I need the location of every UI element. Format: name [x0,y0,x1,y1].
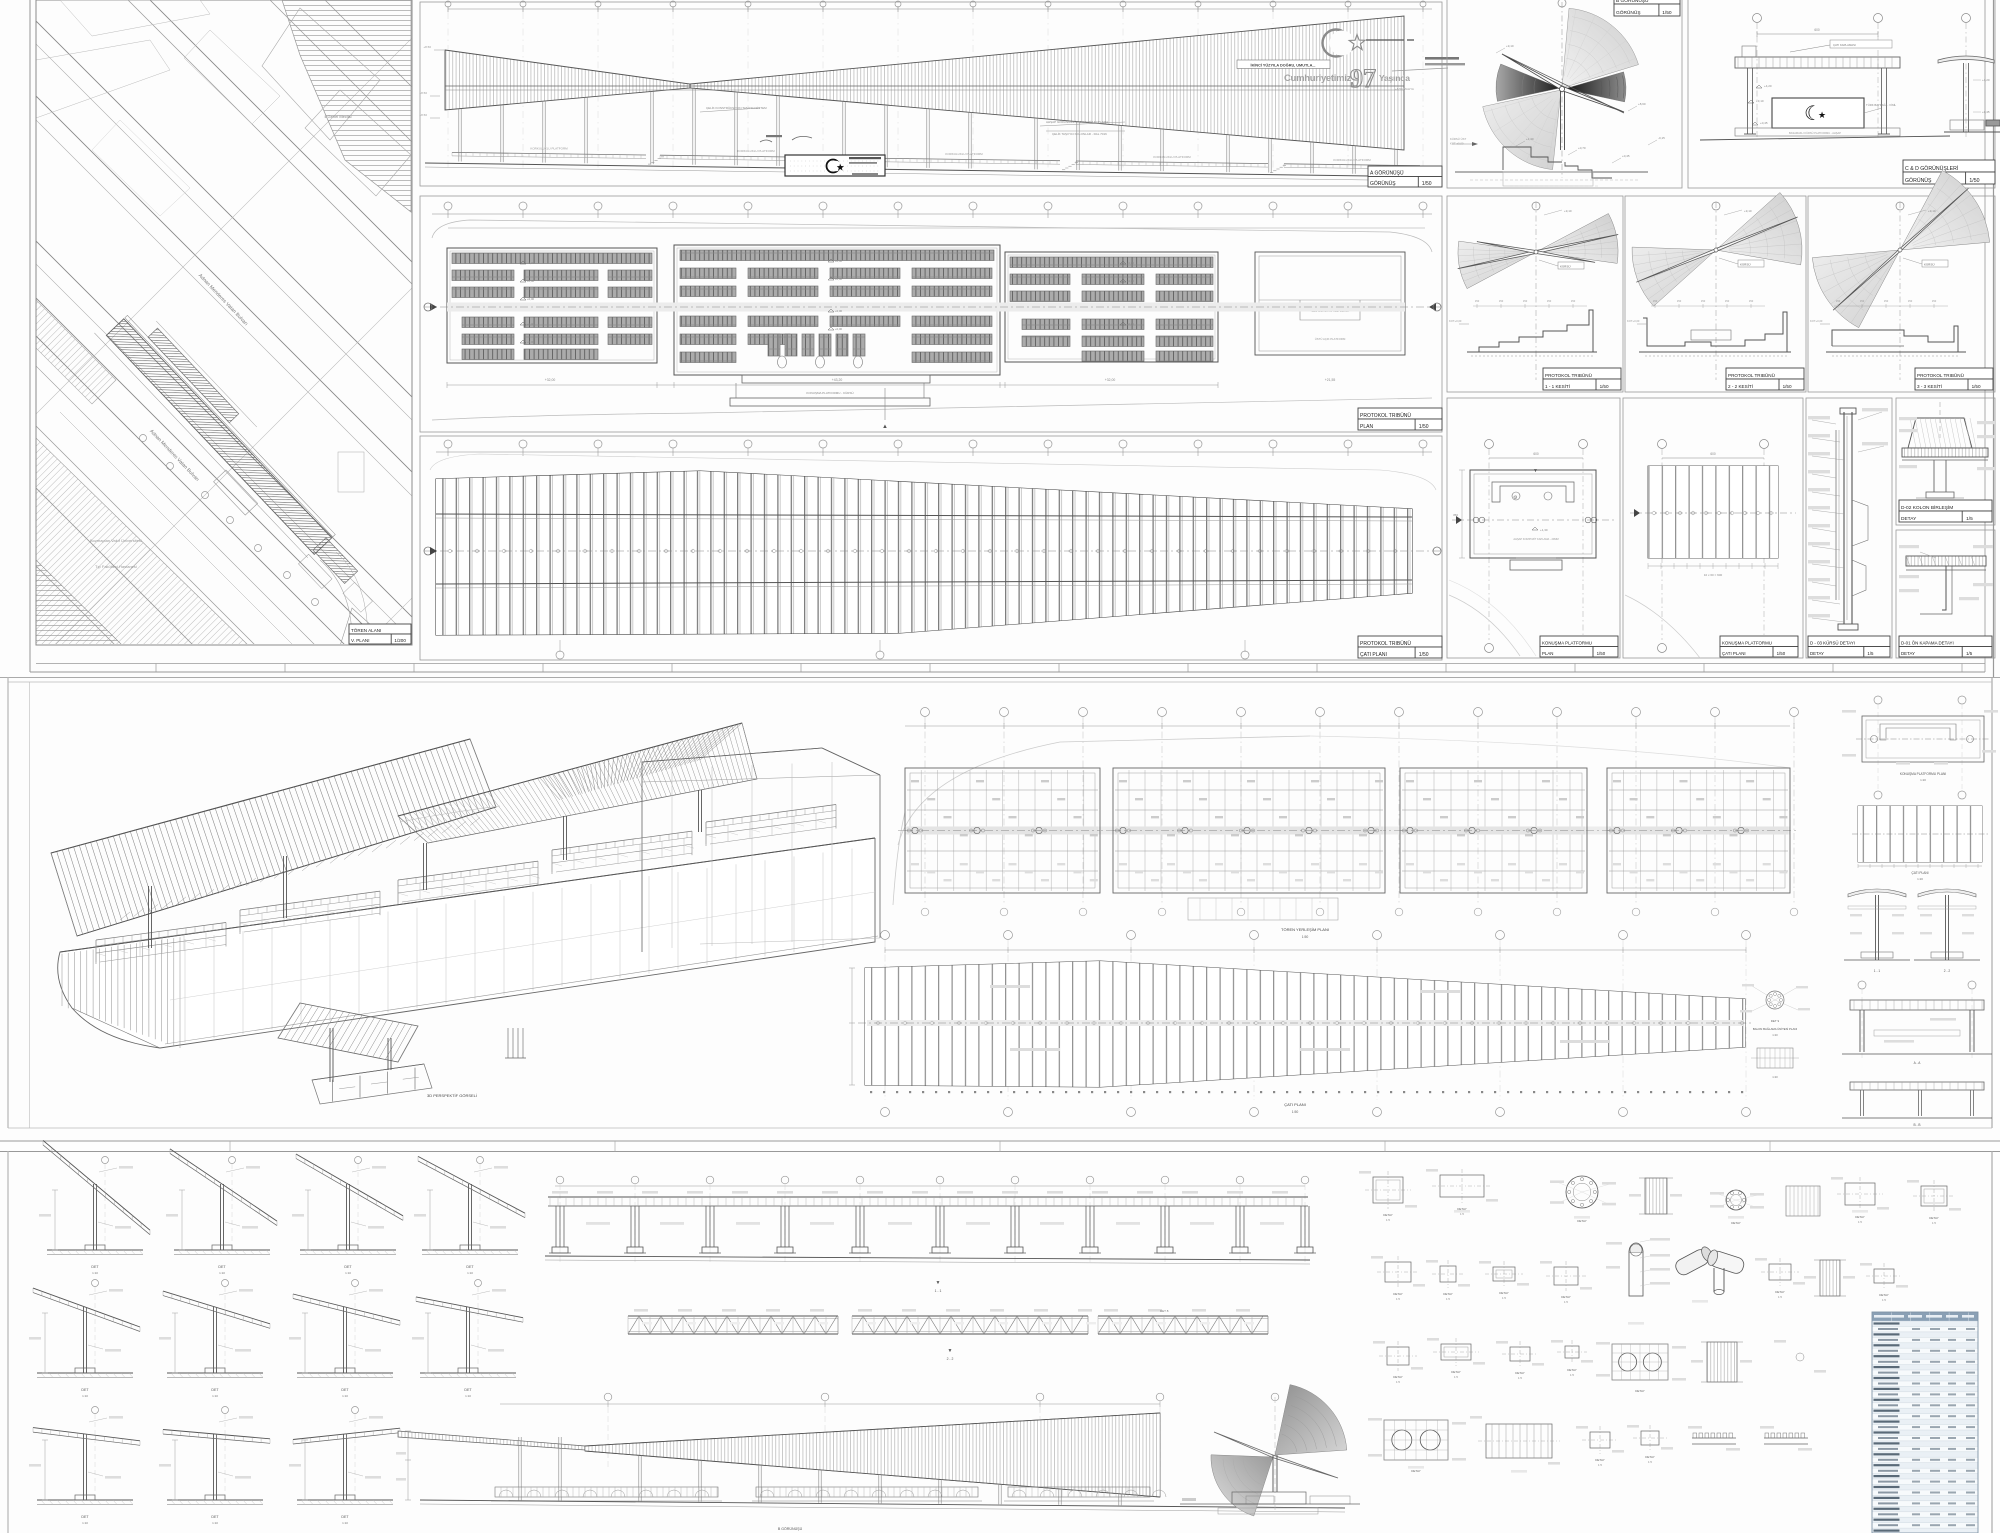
svg-text:150: 150 [1932,299,1937,303]
svg-text:PROTOKOL TRIBÜNÜ: PROTOKOL TRIBÜNÜ [1917,372,1964,378]
svg-text:+1,30: +1,30 [1526,137,1534,141]
svg-text:1:5: 1:5 [1778,1295,1782,1299]
svg-text:ÇATI PLANI: ÇATI PLANI [1722,651,1746,656]
svg-text:1/50: 1/50 [1783,384,1792,389]
svg-text:1:10: 1:10 [345,1271,351,1275]
svg-text:1:50: 1:50 [1292,1110,1299,1114]
svg-text:150: 150 [1523,299,1528,303]
svg-text:KOT:+0,00: KOT:+0,00 [1627,319,1640,323]
svg-text:1:5: 1:5 [1446,1297,1450,1301]
svg-text:1/5: 1/5 [1867,651,1874,656]
svg-text:DETAY: DETAY [1393,1375,1403,1379]
svg-text:TÖREN ALANI: TÖREN ALANI [351,627,381,633]
svg-text:150: 150 [1547,299,1552,303]
svg-text:1:10: 1:10 [212,1394,218,1398]
svg-text:DETAY: DETAY [1515,1371,1525,1375]
svg-text:1/50: 1/50 [1972,384,1981,389]
svg-text:600: 600 [1533,452,1539,456]
svg-text:+9,10: +9,10 [1506,44,1514,48]
svg-text:1/200: 1/200 [394,638,406,643]
svg-text:DETAY: DETAY [1635,1389,1645,1393]
svg-text:1/50: 1/50 [1422,181,1432,187]
svg-text:DETAY: DETAY [1879,1293,1889,1297]
svg-text:DET: DET [91,1265,99,1269]
svg-text:DETAY: DETAY [1775,1290,1785,1294]
svg-text:B GÖRÜNÜŞÜ: B GÖRÜNÜŞÜ [778,1527,803,1531]
svg-text:150: 150 [1677,299,1682,303]
svg-text:1:10: 1:10 [212,1521,218,1525]
svg-text:KONUŞMA PLATFORMU PLANI: KONUŞMA PLATFORMU PLANI [1900,772,1946,776]
svg-text:DET: DET [81,1515,89,1519]
svg-text:DETAY: DETAY [1929,1216,1939,1220]
svg-text:+8,60: +8,60 [1638,102,1646,106]
svg-text:⚙: ⚙ [1513,495,1518,501]
svg-text:PROTOKOL TRIBÜNÜ: PROTOKOL TRIBÜNÜ [1545,372,1592,378]
svg-text:+8.50: +8.50 [423,45,431,49]
svg-text:150: 150 [1475,299,1480,303]
svg-text:KORKULUKLU PLATFORM: KORKULUKLU PLATFORM [1153,155,1191,159]
svg-text:DETAY: DETAY [1393,1292,1403,1296]
svg-text:600: 600 [1814,28,1820,32]
svg-text:DETAY: DETAY [1901,516,1917,522]
svg-text:KÜRSÜ: KÜRSÜ [1740,263,1751,267]
svg-text:KORKULUKLU PLATFORM: KORKULUKLU PLATFORM [945,152,983,156]
svg-text:+32,00: +32,00 [1105,378,1116,382]
svg-text:DETAY: DETAY [1810,651,1824,656]
svg-text:1:20: 1:20 [1917,877,1923,881]
svg-text:DETAY: DETAY [1595,1458,1605,1462]
svg-text:3D PERSPEKTİF GÖRSELİ: 3D PERSPEKTİF GÖRSELİ [427,1093,477,1098]
svg-text:+0,00: +0,00 [1127,261,1135,265]
svg-text:DETAY: DETAY [1731,1221,1741,1225]
svg-text:BALON BAĞLAMA ÜNİTESİ PLANI: BALON BAĞLAMA ÜNİTESİ PLANI [1753,1026,1798,1031]
svg-text:ÜSTÜ AÇIK PLATFORM: ÜSTÜ AÇIK PLATFORM [1315,337,1346,341]
svg-text:1:5: 1:5 [1454,1375,1458,1379]
svg-text:1:5: 1:5 [1598,1463,1602,1467]
svg-text:1:10: 1:10 [82,1394,88,1398]
svg-text:DET: DET [341,1515,349,1519]
svg-text:DETAY: DETAY [1499,1291,1509,1295]
svg-text:1:5: 1:5 [1396,1297,1400,1301]
svg-text:+0,00: +0,00 [835,309,843,313]
svg-text:1 - 1: 1 - 1 [935,1289,942,1293]
svg-text:GÖRÜNÜŞ: GÖRÜNÜŞ [1616,9,1641,16]
svg-text:97: 97 [1350,64,1376,93]
svg-text:1/50: 1/50 [1662,10,1672,16]
svg-text:150: 150 [1653,299,1658,303]
svg-text:1:20: 1:20 [1920,778,1926,782]
svg-text:B GÖRÜNÜŞÜ: B GÖRÜNÜŞÜ [1616,0,1649,4]
svg-text:2 - 2: 2 - 2 [1944,969,1951,973]
svg-text:+0,00: +0,00 [835,327,843,331]
svg-text:+1,30: +1,30 [1540,528,1548,532]
svg-text:1:10: 1:10 [82,1521,88,1525]
svg-text:▼: ▼ [1533,468,1538,474]
svg-text:+0,45: +0,45 [1760,121,1768,125]
svg-text:KORKULUKLU PLATFORM: KORKULUKLU PLATFORM [737,149,775,153]
svg-text:+4,20: +4,20 [1982,78,1990,82]
svg-text:KOT:+0,00: KOT:+0,00 [1810,319,1823,323]
svg-text:150: 150 [1836,299,1841,303]
svg-text:1/5: 1/5 [1966,516,1973,522]
svg-text:+0,00: +0,00 [527,279,535,283]
svg-text:A GÖRÜNÜŞÜ: A GÖRÜNÜŞÜ [1370,170,1404,177]
svg-text:150: 150 [1725,299,1730,303]
svg-text:1/50: 1/50 [1777,651,1786,656]
svg-text:Bozmaplan Vakıf Üniversitesi: Bozmaplan Vakıf Üniversitesi [90,538,142,543]
svg-text:+0,00: +0,00 [1127,279,1135,283]
svg-text:DETAY: DETAY [1561,1295,1571,1299]
svg-text:DETAY: DETAY [1901,651,1915,656]
svg-text:KÜRSÜ ÜST: KÜRSÜ ÜST [1450,137,1466,141]
svg-text:2 - 2: 2 - 2 [947,1357,954,1361]
svg-text:KONUŞMA PLATFORMU: KONUŞMA PLATFORMU [1542,641,1592,646]
svg-text:DET: DET [81,1388,89,1392]
svg-text:PLAN: PLAN [1542,651,1553,656]
svg-text:GÖRÜNÜŞ: GÖRÜNÜŞ [1905,177,1932,184]
svg-text:▲: ▲ [882,424,888,430]
svg-text:DET: DET [466,1265,474,1269]
svg-text:1:5: 1:5 [1570,1373,1574,1377]
svg-text:+43,20: +43,20 [832,378,843,382]
svg-text:+9,10: +9,10 [1744,209,1752,213]
svg-text:1:5: 1:5 [1502,1296,1506,1300]
svg-text:+8.50: +8.50 [419,113,427,117]
svg-text:1:10: 1:10 [342,1394,348,1398]
svg-text:+0,00: +0,00 [835,277,843,281]
svg-text:2 - 2 KESİTİ: 2 - 2 KESİTİ [1728,383,1753,389]
svg-text:150: 150 [1884,299,1889,303]
svg-text:KOT ±0,00: KOT ±0,00 [1450,142,1464,146]
svg-text:BASAMAKLI KÜRSÜ PLATFORMU - AH: BASAMAKLI KÜRSÜ PLATFORMU - AHŞAP [1789,131,1841,135]
svg-text:+0,00: +0,00 [527,340,535,344]
svg-text:1/50: 1/50 [1419,424,1429,430]
svg-text:KONUŞMA PLATFORMU - KÜRSÜ: KONUŞMA PLATFORMU - KÜRSÜ [806,391,853,395]
svg-text:ÇATI PLANI: ÇATI PLANI [1360,652,1387,658]
svg-text:+0,00: +0,00 [527,261,535,265]
svg-text:1:5: 1:5 [1396,1380,1400,1384]
svg-text:1/5: 1/5 [1966,651,1973,656]
svg-text:Cumhuriyetimiz: Cumhuriyetimiz [1284,73,1352,84]
svg-text:1:5: 1:5 [1518,1376,1522,1380]
svg-text:DET: DET [464,1388,472,1392]
svg-text:+9,10: +9,10 [1564,209,1572,213]
svg-text:PROTOKOL TRIBÜNÜ: PROTOKOL TRIBÜNÜ [1728,372,1775,378]
svg-text:350: 350 [1453,513,1458,517]
svg-text:DET: DET [218,1265,226,1269]
svg-text:150: 150 [1701,299,1706,303]
svg-text:KORKULUKLU PLATFORM: KORKULUKLU PLATFORM [1333,158,1371,162]
svg-text:ÇELİK KONSTRÜKSİYON TAŞIYICI S: ÇELİK KONSTRÜKSİYON TAŞIYICI SİSTEM [706,105,767,110]
svg-text:1:10: 1:10 [465,1394,471,1398]
svg-text:D - 03 KÜRSÜ DETAYI: D - 03 KÜRSÜ DETAYI [1810,641,1855,646]
svg-text:+0,70: +0,70 [1578,146,1586,150]
svg-text:DETAY: DETAY [1411,1469,1421,1473]
svg-text:1:10: 1:10 [467,1271,473,1275]
svg-text:+0,00: +0,00 [1127,322,1135,326]
svg-text:150: 150 [1749,299,1754,303]
svg-text:ÇELİK TAŞIYICI KOLONLAR - RAL: ÇELİK TAŞIYICI KOLONLAR - RAL 7016 [1052,131,1107,136]
svg-text:150: 150 [1571,299,1576,303]
svg-text:DETAY: DETAY [1567,1368,1577,1372]
svg-text:★: ★ [1818,110,1826,120]
svg-text:DETAY: DETAY [1443,1292,1453,1296]
svg-text:+8.50: +8.50 [419,91,427,95]
svg-text:İKİNCİ YÜZYILA DOĞRU, UMUTLA..: İKİNCİ YÜZYILA DOĞRU, UMUTLA... [1251,62,1316,67]
svg-text:+0,00: +0,00 [835,259,843,263]
svg-text:150: 150 [1860,299,1865,303]
svg-text:B - B: B - B [1913,1123,1920,1127]
svg-text:+0,00: +0,00 [527,322,535,326]
svg-text:KORKULUKLU PLATFORM: KORKULUKLU PLATFORM [530,146,568,150]
svg-text:DETAY: DETAY [1577,1219,1587,1223]
svg-text:-0,15: -0,15 [1658,136,1665,140]
svg-text:TÖREN YERLEŞİM PLANI: TÖREN YERLEŞİM PLANI [1281,927,1329,932]
svg-text:1:5: 1:5 [1858,1220,1862,1224]
svg-text:KONUŞMA PLATFORMU: KONUŞMA PLATFORMU [1722,641,1772,646]
svg-text:1/50: 1/50 [1419,652,1429,658]
svg-text:DET 9: DET 9 [1771,1019,1780,1023]
svg-text:1:10: 1:10 [342,1521,348,1525]
svg-text:1:50: 1:50 [1302,935,1309,939]
svg-text:DETAY: DETAY [1383,1213,1393,1217]
svg-text:A - A: A - A [1914,1061,1922,1065]
svg-text:KÜRSÜ: KÜRSÜ [1924,263,1935,267]
svg-text:ÇATI PLANI: ÇATI PLANI [1284,1102,1306,1107]
svg-text:DETAY: DETAY [1451,1370,1461,1374]
svg-text:KOT:+0,00: KOT:+0,00 [1449,319,1462,323]
svg-text:DET: DET [344,1265,352,1269]
svg-text:10 x 60 = 600: 10 x 60 = 600 [1704,573,1723,577]
svg-text:1:5: 1:5 [1882,1298,1886,1302]
svg-text:Yaşında: Yaşında [1379,73,1410,83]
svg-text:+9,10: +9,10 [1928,209,1936,213]
svg-text:1:10: 1:10 [219,1271,225,1275]
svg-text:DETAY: DETAY [1855,1215,1865,1219]
svg-text:C & D GÖRÜNÜŞLERİ: C & D GÖRÜNÜŞLERİ [1905,165,1958,172]
svg-text:150: 150 [1499,299,1504,303]
svg-text:+3,10: +3,10 [1756,99,1764,103]
svg-text:GÖRÜNÜŞ: GÖRÜNÜŞ [1370,180,1396,187]
svg-text:+0,00: +0,00 [527,297,535,301]
svg-text:PROTOKOL TRIBÜNÜ: PROTOKOL TRIBÜNÜ [1360,640,1411,647]
svg-text:1:20: 1:20 [1772,1033,1778,1037]
svg-text:1:10: 1:10 [92,1271,98,1275]
svg-text:D-01 ÖN KAPAMA DETAYI: D-01 ÖN KAPAMA DETAYI [1901,641,1954,646]
svg-text:3 - 3 KESİTİ: 3 - 3 KESİTİ [1917,383,1942,389]
svg-text:▼: ▼ [936,1280,941,1286]
svg-text:150: 150 [1908,299,1913,303]
svg-text:AHŞAP GÖRÜNÜMLÜ KOMPOZİT KAPLA: AHŞAP GÖRÜNÜMLÜ KOMPOZİT KAPLAMA [1046,119,1108,124]
svg-text:ÇATI KAPLAMASI: ÇATI KAPLAMASI [1833,43,1856,47]
svg-text:1 - 1 KESİTİ: 1 - 1 KESİTİ [1545,383,1570,389]
svg-text:1 - 1: 1 - 1 [1874,969,1881,973]
svg-text:ÇATI PLANI: ÇATI PLANI [1911,871,1928,875]
svg-text:DET: DET [211,1515,219,1519]
svg-text:1/50: 1/50 [1969,178,1979,184]
svg-text:PLAN: PLAN [1360,424,1373,430]
svg-text:+0,45: +0,45 [1622,154,1630,158]
svg-text:1:5: 1:5 [1564,1300,1568,1304]
svg-text:DETAY: DETAY [1645,1455,1655,1459]
svg-text:TÜRK BAYRAĞI - VİNİL: TÜRK BAYRAĞI - VİNİL [1866,102,1897,107]
svg-text:600: 600 [1710,452,1716,456]
svg-text:DET: DET [341,1388,349,1392]
svg-text:+32,00: +32,00 [545,378,556,382]
svg-text:1:5: 1:5 [1648,1460,1652,1464]
svg-text:+4,20: +4,20 [1764,84,1772,88]
svg-text:1:20: 1:20 [1772,1075,1778,1079]
svg-text:DET 8: DET 8 [1160,1309,1169,1313]
svg-text:1/50: 1/50 [1600,384,1609,389]
svg-text:1:5: 1:5 [1386,1218,1390,1222]
svg-text:V. PLANI: V. PLANI [351,638,369,643]
svg-text:Tıp Fakültesi Hastanesi: Tıp Fakültesi Hastanesi [95,564,137,569]
svg-text:1:5: 1:5 [1932,1221,1936,1225]
svg-text:KÜRSÜ: KÜRSÜ [1560,265,1571,269]
svg-text:DET: DET [211,1388,219,1392]
svg-text:▼: ▼ [948,1348,953,1354]
svg-text:PROTOKOL TRIBÜNÜ: PROTOKOL TRIBÜNÜ [1360,412,1411,419]
svg-text:+0,45: +0,45 [1982,110,1990,114]
svg-text:D-02 KOLON BİRLEŞİM: D-02 KOLON BİRLEŞİM [1901,504,1953,511]
svg-text:İl Genel Meclisi: İl Genel Meclisi [324,114,351,119]
svg-text:1/50: 1/50 [1597,651,1606,656]
svg-text:+8,50 MAHYA: +8,50 MAHYA [1395,87,1414,91]
svg-text:+21,55: +21,55 [1325,378,1336,382]
